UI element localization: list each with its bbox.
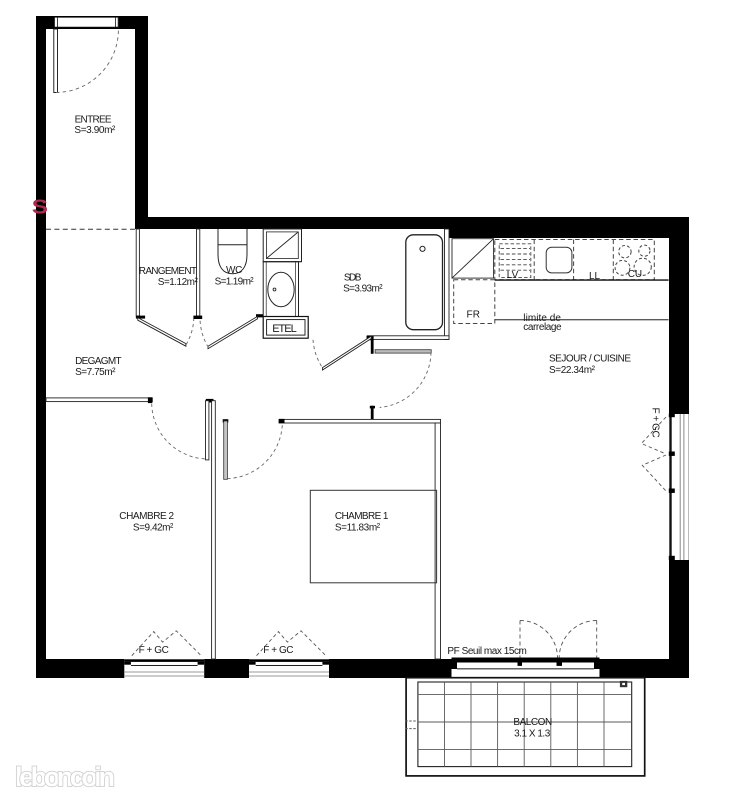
svg-text:S=22.34m²: S=22.34m² <box>549 365 596 376</box>
svg-text:leboncoin: leboncoin <box>15 762 115 792</box>
svg-text:CU: CU <box>628 269 642 280</box>
svg-text:BALCON: BALCON <box>513 717 552 728</box>
svg-text:S=11.83m²: S=11.83m² <box>335 523 381 534</box>
svg-text:F + GC: F + GC <box>139 645 169 656</box>
svg-text:S: S <box>32 197 48 219</box>
svg-text:SEJOUR / CUISINE: SEJOUR / CUISINE <box>549 353 631 364</box>
svg-text:WC: WC <box>226 265 242 276</box>
svg-text:S=9.42m²: S=9.42m² <box>133 523 174 534</box>
svg-text:CHAMBRE 2: CHAMBRE 2 <box>119 511 174 522</box>
svg-text:LL: LL <box>589 271 601 282</box>
svg-text:ETEL: ETEL <box>272 323 297 335</box>
svg-text:F + GC: F + GC <box>263 645 293 656</box>
svg-text:CHAMBRE 1: CHAMBRE 1 <box>335 511 389 522</box>
svg-text:S=1.12m²: S=1.12m² <box>158 277 199 288</box>
svg-text:LV: LV <box>507 270 519 281</box>
svg-text:RANGEMENT: RANGEMENT <box>139 266 197 277</box>
svg-text:S=7.75m²: S=7.75m² <box>75 367 116 378</box>
svg-text:DEGAGMT: DEGAGMT <box>75 356 122 367</box>
svg-text:SDB: SDB <box>344 272 362 283</box>
svg-text:carrelage: carrelage <box>523 322 562 333</box>
svg-text:S=1.19m²: S=1.19m² <box>215 276 255 287</box>
svg-text:S=3.90m²: S=3.90m² <box>74 125 116 136</box>
svg-text:PF Seuil max 15cm: PF Seuil max 15cm <box>447 646 527 657</box>
svg-text:FR: FR <box>467 310 481 321</box>
svg-text:S=3.93m²: S=3.93m² <box>343 283 383 294</box>
svg-text:F + GC: F + GC <box>650 408 661 438</box>
svg-text:ENTREE: ENTREE <box>75 115 112 126</box>
svg-text:3.1 X 1.3: 3.1 X 1.3 <box>514 728 551 739</box>
